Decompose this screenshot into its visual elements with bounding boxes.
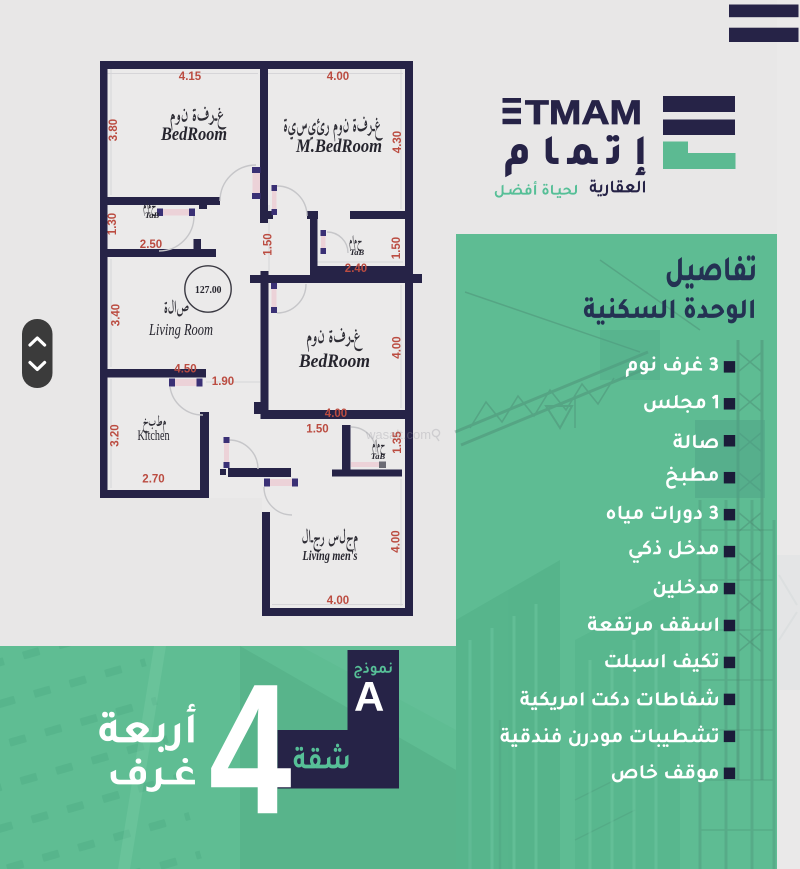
svg-text:1.50: 1.50 (306, 424, 328, 436)
svg-text:1.50: 1.50 (391, 237, 403, 259)
svg-text:4.00: 4.00 (391, 530, 403, 552)
svg-text:4.00: 4.00 (327, 71, 349, 83)
svg-text:M.BedRoom: M.BedRoom (295, 136, 382, 157)
svg-text:Living men's: Living men's (302, 548, 358, 563)
svg-text:4.50: 4.50 (174, 364, 196, 376)
svg-text:TaB: TaB (371, 451, 386, 461)
svg-text:1.30: 1.30 (107, 213, 119, 235)
svg-text:A: A (354, 673, 384, 720)
svg-text:TMAM: TMAM (525, 94, 642, 132)
svg-text:TaB: TaB (145, 210, 160, 220)
svg-text:1.50: 1.50 (263, 233, 275, 255)
svg-text:4.30: 4.30 (392, 131, 404, 153)
svg-text:wasalt.com: wasalt.com (365, 427, 431, 442)
svg-text:BedRoom: BedRoom (160, 124, 227, 145)
svg-text:4.00: 4.00 (392, 336, 404, 358)
svg-text:Living Room: Living Room (148, 320, 213, 339)
svg-text:4.00: 4.00 (325, 408, 347, 420)
svg-text:Kitchen: Kitchen (138, 428, 170, 444)
svg-text:2.50: 2.50 (140, 239, 162, 251)
svg-text:2.40: 2.40 (345, 263, 367, 275)
svg-text:TaB: TaB (350, 247, 365, 257)
svg-text:1.90: 1.90 (212, 376, 234, 388)
svg-text:4.00: 4.00 (327, 595, 349, 607)
svg-text:3.80: 3.80 (108, 119, 120, 141)
svg-text:127.00: 127.00 (195, 284, 222, 296)
svg-text:4.15: 4.15 (179, 71, 202, 83)
svg-text:BedRoom: BedRoom (298, 351, 370, 372)
svg-text:3.40: 3.40 (111, 304, 123, 326)
svg-text:2.70: 2.70 (142, 474, 164, 486)
svg-text:3.20: 3.20 (110, 424, 122, 446)
